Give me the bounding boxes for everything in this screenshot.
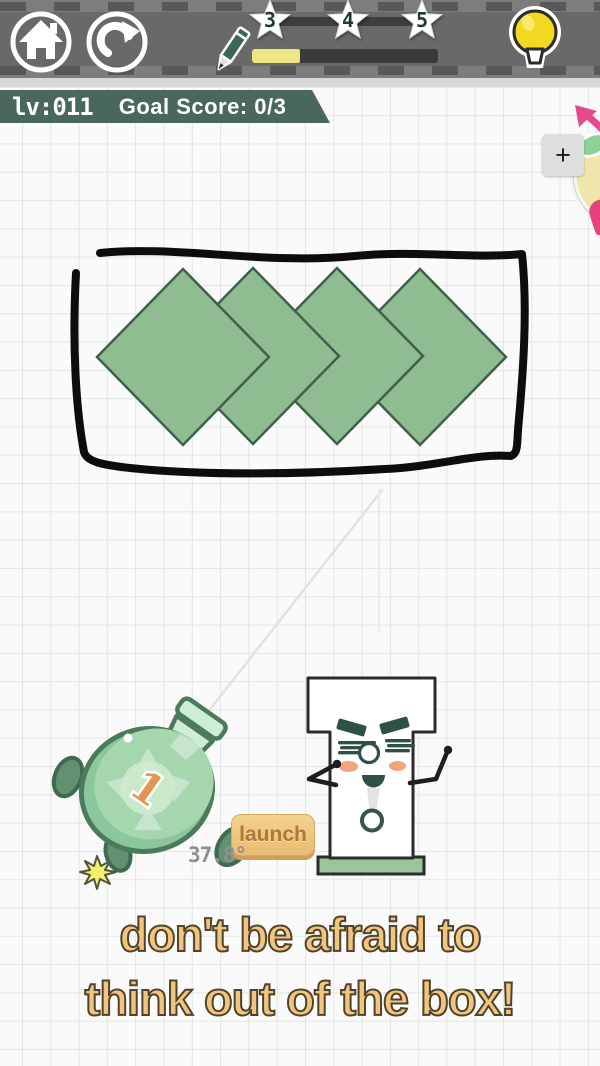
hint-line-2: think out of the box! — [0, 967, 600, 1031]
milestone-star-4: 4 — [326, 0, 370, 43]
right-arm — [410, 750, 448, 783]
plus-label: + — [555, 140, 571, 171]
hint-button[interactable] — [503, 2, 567, 78]
level-progress-bar — [252, 49, 438, 63]
level-badge: lv:011 Goal Score: 0/3 — [0, 90, 330, 123]
launch-label: launch — [239, 823, 307, 847]
milestone-star-3: 3 — [248, 0, 292, 43]
restart-icon — [101, 21, 140, 53]
angle-readout: 37.8° — [188, 843, 246, 867]
star-4-label: 4 — [342, 8, 354, 32]
toolbar-edge-strip — [0, 78, 600, 88]
game-screen: + 1 — [0, 0, 600, 1066]
drawn-box-with-diamonds — [55, 225, 547, 483]
hint-text: don't be afraid to think out of the box! — [0, 903, 600, 1031]
goal-score: Goal Score: 0/3 — [119, 94, 287, 120]
bottom-hole — [362, 811, 382, 831]
right-blush — [389, 761, 406, 771]
restart-button[interactable] — [84, 9, 150, 75]
bomb-highlight — [124, 734, 133, 743]
milestone-star-5: 5 — [400, 0, 444, 43]
star-3-label: 3 — [264, 8, 276, 32]
t-block-base — [318, 857, 424, 874]
left-blush — [339, 761, 358, 772]
monocle-icon — [360, 744, 379, 763]
star-5-label: 5 — [416, 8, 428, 32]
hint-line-1: don't be afraid to — [0, 903, 600, 967]
diamond-blocks — [97, 268, 506, 445]
t-block-character — [293, 660, 468, 880]
progress-fill — [252, 49, 300, 63]
home-icon — [19, 20, 63, 59]
zoom-plus-button[interactable]: + — [542, 134, 584, 176]
lightbulb-icon — [509, 6, 561, 68]
home-button[interactable] — [8, 9, 74, 75]
pencil-icon — [214, 27, 250, 73]
level-number: lv:011 — [12, 93, 93, 121]
